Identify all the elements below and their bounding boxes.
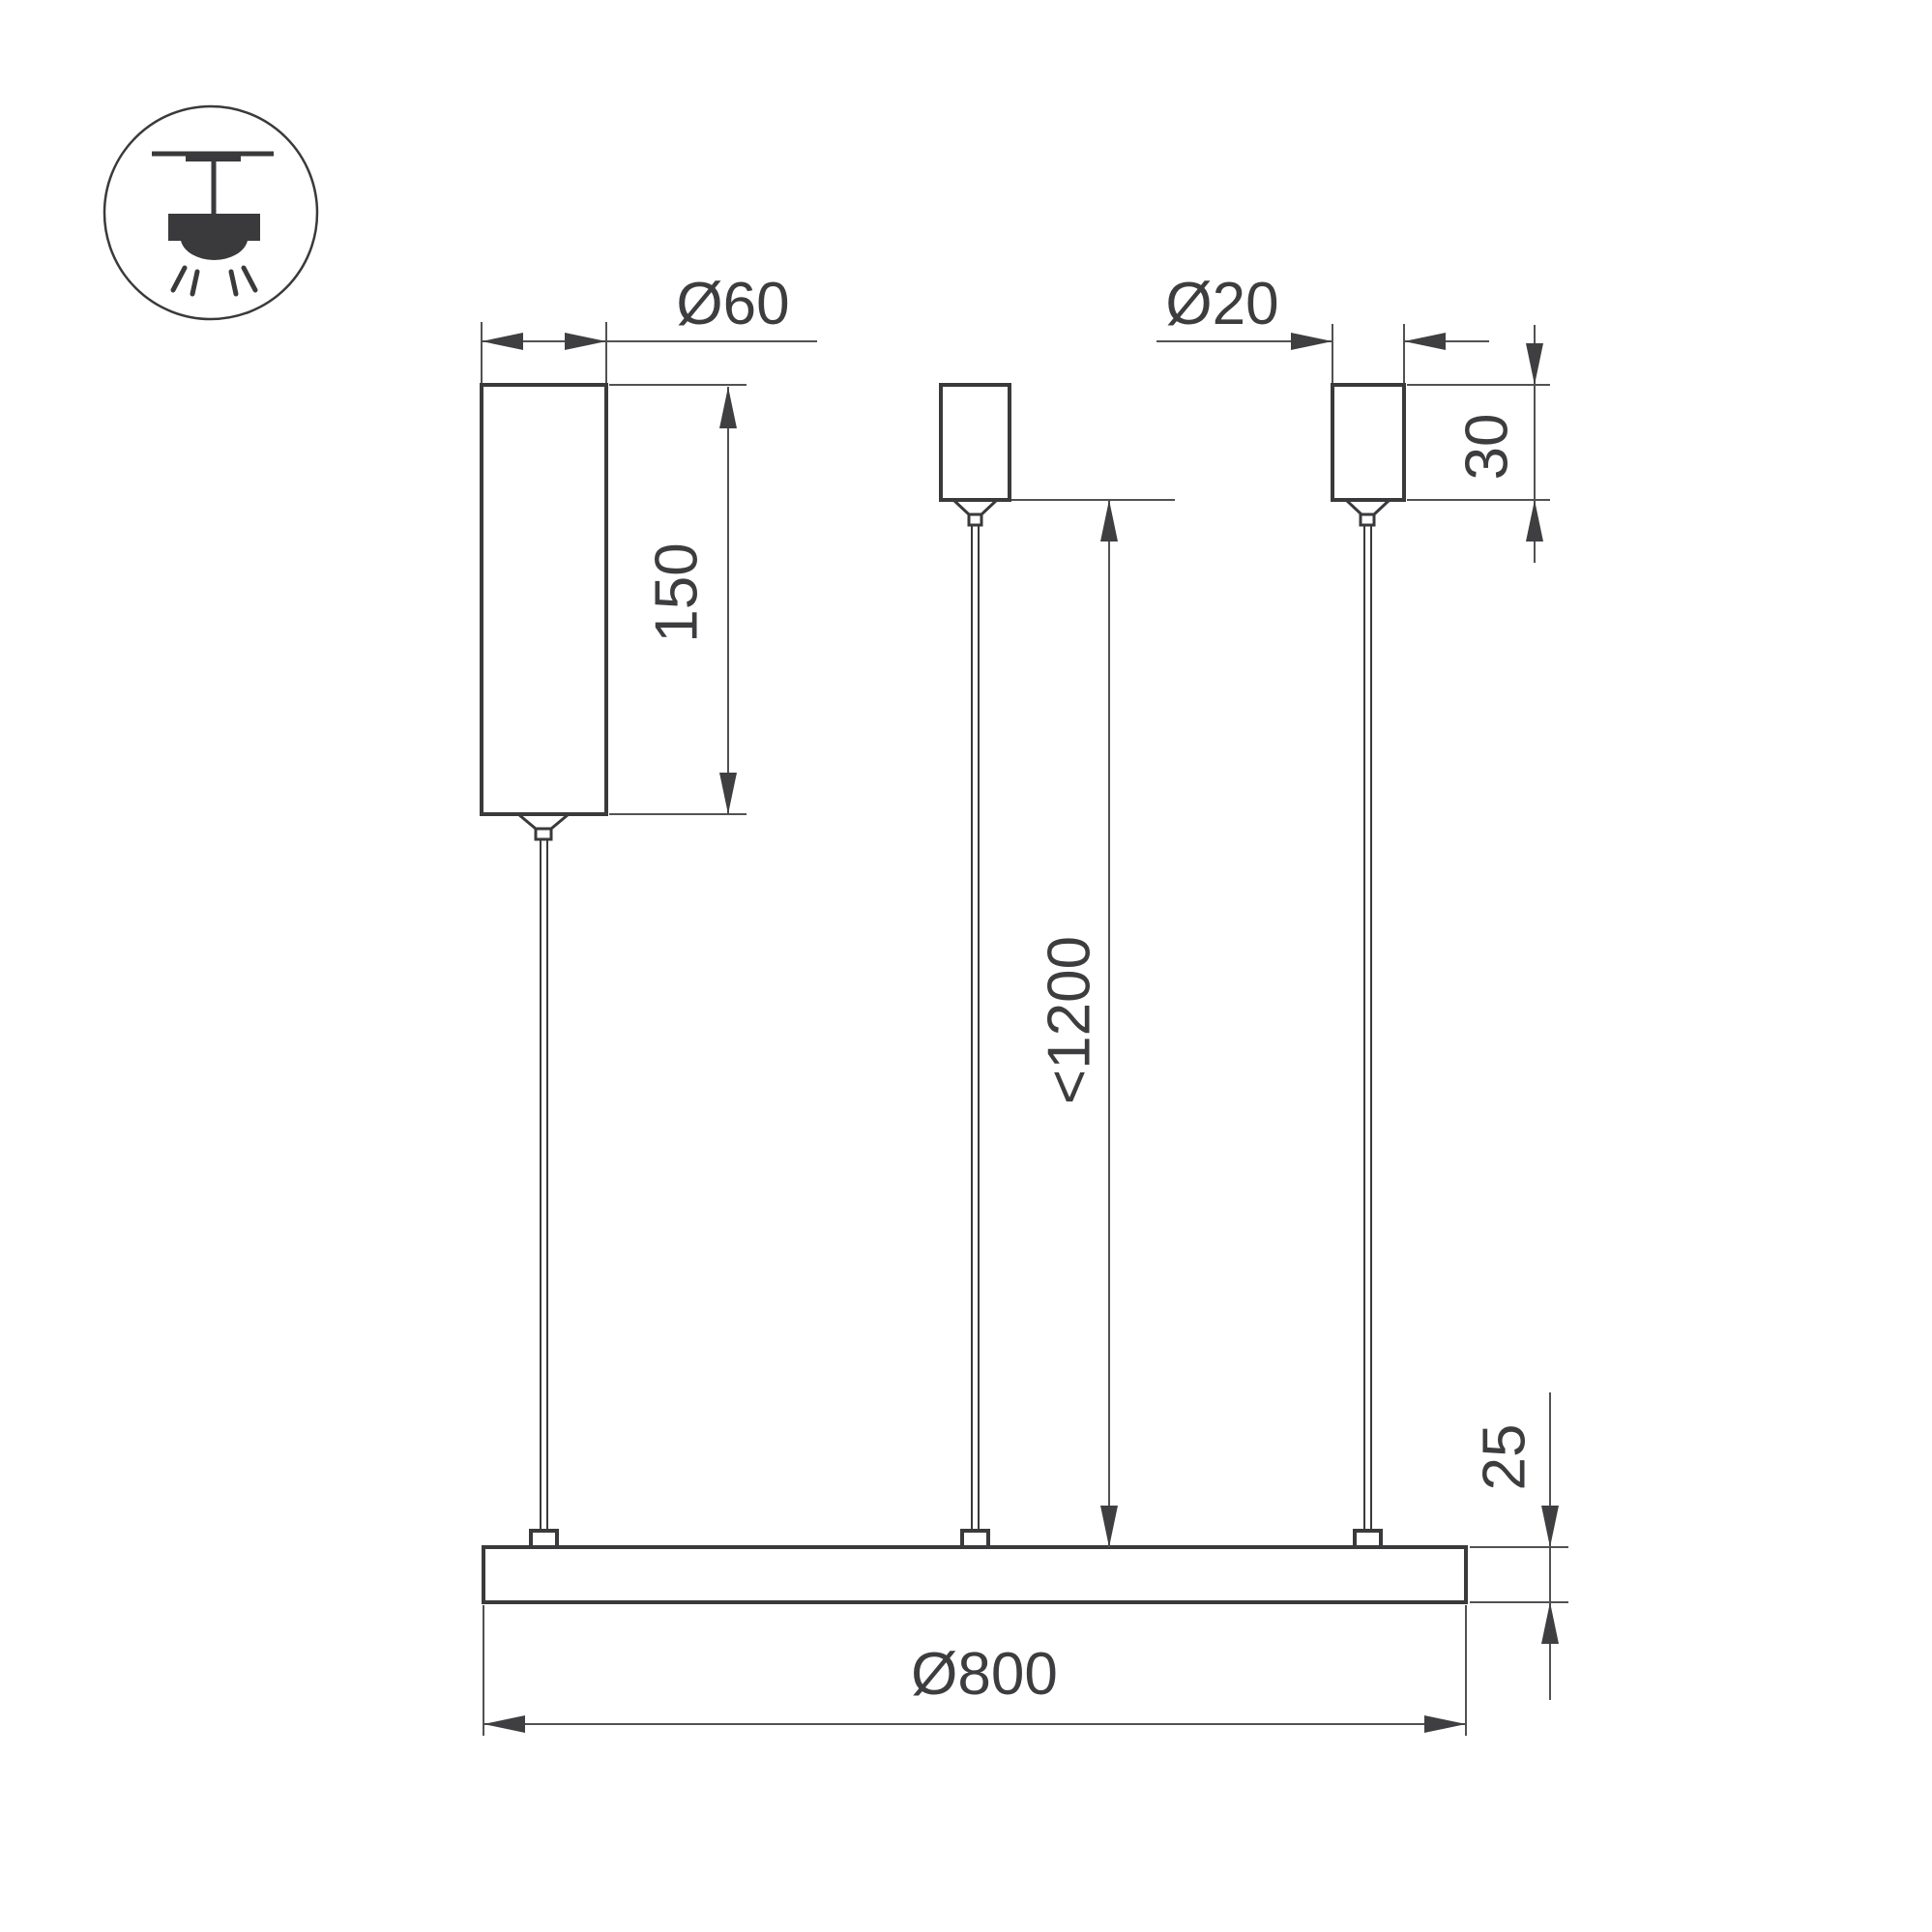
dim-label-canopy-diameter: Ø20 [1165,271,1278,337]
driver-unit [482,385,606,1547]
icon-light-ray [231,272,236,294]
drawing-page: Ø60 150 Ø20 30 <1200 [0,0,1932,1932]
arrowhead [719,773,737,814]
dim-suspension-length: <1200 [1011,500,1175,1547]
icon-light-ray [192,272,197,294]
canopy-middle-cone [953,500,997,514]
canopy-right [1332,385,1404,1547]
arrowhead [1541,1602,1559,1644]
arrowhead [1526,343,1543,385]
dim-label-suspension-length: <1200 [1037,936,1103,1104]
dim-canopy-height: 30 [1407,325,1550,563]
suspension-wire-middle [972,525,979,1531]
canopy-middle [941,385,1010,1547]
canopy-middle-outline [941,385,1010,500]
mount-type-icon [104,106,317,319]
icon-lamp-body [168,214,260,241]
canopy-right-cone [1346,500,1390,514]
dim-ring-diameter: Ø800 [483,1605,1466,1736]
suspension-wire-left [541,839,547,1531]
dim-label-canopy-height: 30 [1454,414,1521,481]
drawing-canvas: Ø60 150 Ø20 30 <1200 [0,0,1932,1932]
driver-outline [482,385,606,814]
wire-holder-left [531,1531,557,1547]
arrowhead [483,1715,525,1733]
icon-circle [104,106,317,319]
wire-holder-middle [962,1531,988,1547]
ring-profile [483,1547,1466,1602]
canopy-right-outline [1332,385,1404,500]
arrowhead [1100,500,1118,542]
arrowhead [1541,1506,1559,1547]
icon-lamp-diffuser [181,241,248,260]
suspension-wire-right [1364,525,1371,1531]
icon-light-ray [173,268,185,290]
dim-label-driver-diameter: Ø60 [676,271,789,337]
canopy-right-grip [1361,514,1374,525]
arrowhead [719,387,737,428]
dim-driver-length: 150 [609,385,746,814]
driver-grip [536,829,551,839]
dim-label-profile-height: 25 [1472,1424,1538,1491]
dim-canopy-diameter: Ø20 [1156,271,1489,383]
arrowhead [482,333,523,350]
arrowhead [1100,1506,1118,1547]
dim-driver-diameter: Ø60 [482,271,817,383]
arrowhead [1424,1715,1466,1733]
icon-light-ray [244,268,255,290]
driver-cone [518,814,569,829]
dim-label-ring-diameter: Ø800 [911,1641,1058,1708]
dim-profile-height: 25 [1470,1392,1568,1700]
arrowhead [1526,500,1543,542]
dim-label-driver-length: 150 [644,542,711,642]
arrowhead [565,333,606,350]
canopy-middle-grip [969,514,981,525]
wire-holder-right [1355,1531,1381,1547]
arrowhead [1291,333,1332,350]
arrowhead [1404,333,1446,350]
